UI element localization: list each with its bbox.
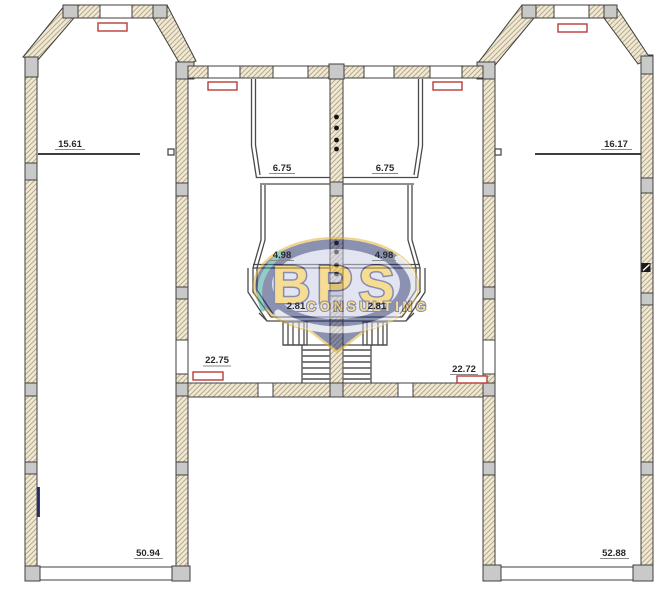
door-jamb-tick xyxy=(168,149,174,155)
stair-treads xyxy=(343,350,371,379)
wall-segment xyxy=(188,66,208,78)
radiator-icon xyxy=(558,24,587,32)
wall-segment xyxy=(176,66,188,581)
window-opening xyxy=(364,66,394,78)
wall-segment xyxy=(78,5,100,18)
window-opening xyxy=(430,66,462,78)
column-block xyxy=(604,5,617,18)
room-label-center-left-hall: 22.75 xyxy=(205,355,229,366)
door-jamb-tick xyxy=(495,149,501,155)
window-opening xyxy=(40,567,172,580)
wall-segment xyxy=(240,66,273,78)
radiator-icon xyxy=(457,376,487,383)
floor-plan-canvas: 15.61 50.94 16.17 52.88 xyxy=(0,0,670,589)
column-block xyxy=(172,566,190,581)
wall-segment xyxy=(462,66,483,78)
column-block xyxy=(483,565,501,581)
wall-segment xyxy=(344,66,364,78)
column-block xyxy=(25,383,37,396)
left-wing: 15.61 50.94 xyxy=(23,5,196,581)
partition-line xyxy=(414,79,419,175)
column-block xyxy=(63,5,78,18)
room-label-center-right-hall: 22.72 xyxy=(452,364,476,375)
room-label-center-left-top: 6.75 xyxy=(273,163,292,174)
room-label-center-right-bay: 2.81 xyxy=(368,301,387,312)
wall-segment xyxy=(413,383,483,397)
wall-segment xyxy=(343,383,398,397)
room-label-center-right-mid: 4.98 xyxy=(375,250,394,261)
column-block xyxy=(330,383,343,397)
wall-segment xyxy=(394,66,430,78)
room-label-left-wing-lower: 50.94 xyxy=(136,548,160,559)
radiator-icon xyxy=(433,82,462,90)
wall-segment xyxy=(132,5,153,18)
column-block xyxy=(641,462,653,475)
column-block xyxy=(483,183,495,196)
stair-treads xyxy=(302,350,330,379)
room-label-left-wing-upper: 15.61 xyxy=(58,139,82,150)
wall-segment xyxy=(188,383,258,397)
wall-segment xyxy=(273,383,330,397)
column-block xyxy=(641,293,653,305)
room-label-right-wing-upper: 16.17 xyxy=(604,139,628,150)
wall-segment xyxy=(308,66,330,78)
right-wing: 16.17 52.88 xyxy=(477,5,653,581)
partition-line xyxy=(256,79,261,175)
window-opening xyxy=(176,340,188,374)
window-opening xyxy=(554,5,589,18)
radiator-icon xyxy=(208,82,237,90)
column-block xyxy=(483,462,495,475)
radiator-icon xyxy=(98,23,127,31)
room-label-center-left-bay: 2.81 xyxy=(287,301,306,312)
column-block xyxy=(25,566,40,581)
radiator-icon xyxy=(193,372,223,380)
column-block xyxy=(483,383,495,396)
door-opening xyxy=(398,383,413,397)
column-block xyxy=(25,163,37,180)
window-opening xyxy=(501,567,633,580)
room-label-right-wing-lower: 52.88 xyxy=(602,548,626,559)
column-block xyxy=(483,287,495,299)
column-block xyxy=(633,565,653,581)
column-block xyxy=(641,56,653,74)
column-block xyxy=(25,462,37,474)
window-opening xyxy=(208,66,240,78)
column-block xyxy=(641,178,653,193)
door-opening xyxy=(258,383,273,397)
column-block xyxy=(176,183,188,196)
column-block xyxy=(25,57,38,77)
column-block xyxy=(176,462,188,475)
column-block xyxy=(176,383,188,396)
wall-segment xyxy=(641,55,653,581)
wall-segment xyxy=(589,5,604,18)
column-block xyxy=(330,182,343,196)
window-opening xyxy=(273,66,308,78)
column-block xyxy=(176,287,188,299)
wall-segment xyxy=(536,5,554,18)
floor-plan-svg: 15.61 50.94 16.17 52.88 xyxy=(0,0,670,589)
room-label-center-right-top: 6.75 xyxy=(376,163,395,174)
window-opening xyxy=(483,340,495,374)
column-block xyxy=(522,5,536,18)
wall-segment xyxy=(483,66,495,581)
window-opening xyxy=(100,5,132,18)
room-label-center-left-mid: 4.98 xyxy=(273,250,292,261)
wall-segment xyxy=(25,55,37,581)
column-block xyxy=(153,5,167,18)
column-block xyxy=(329,64,344,79)
